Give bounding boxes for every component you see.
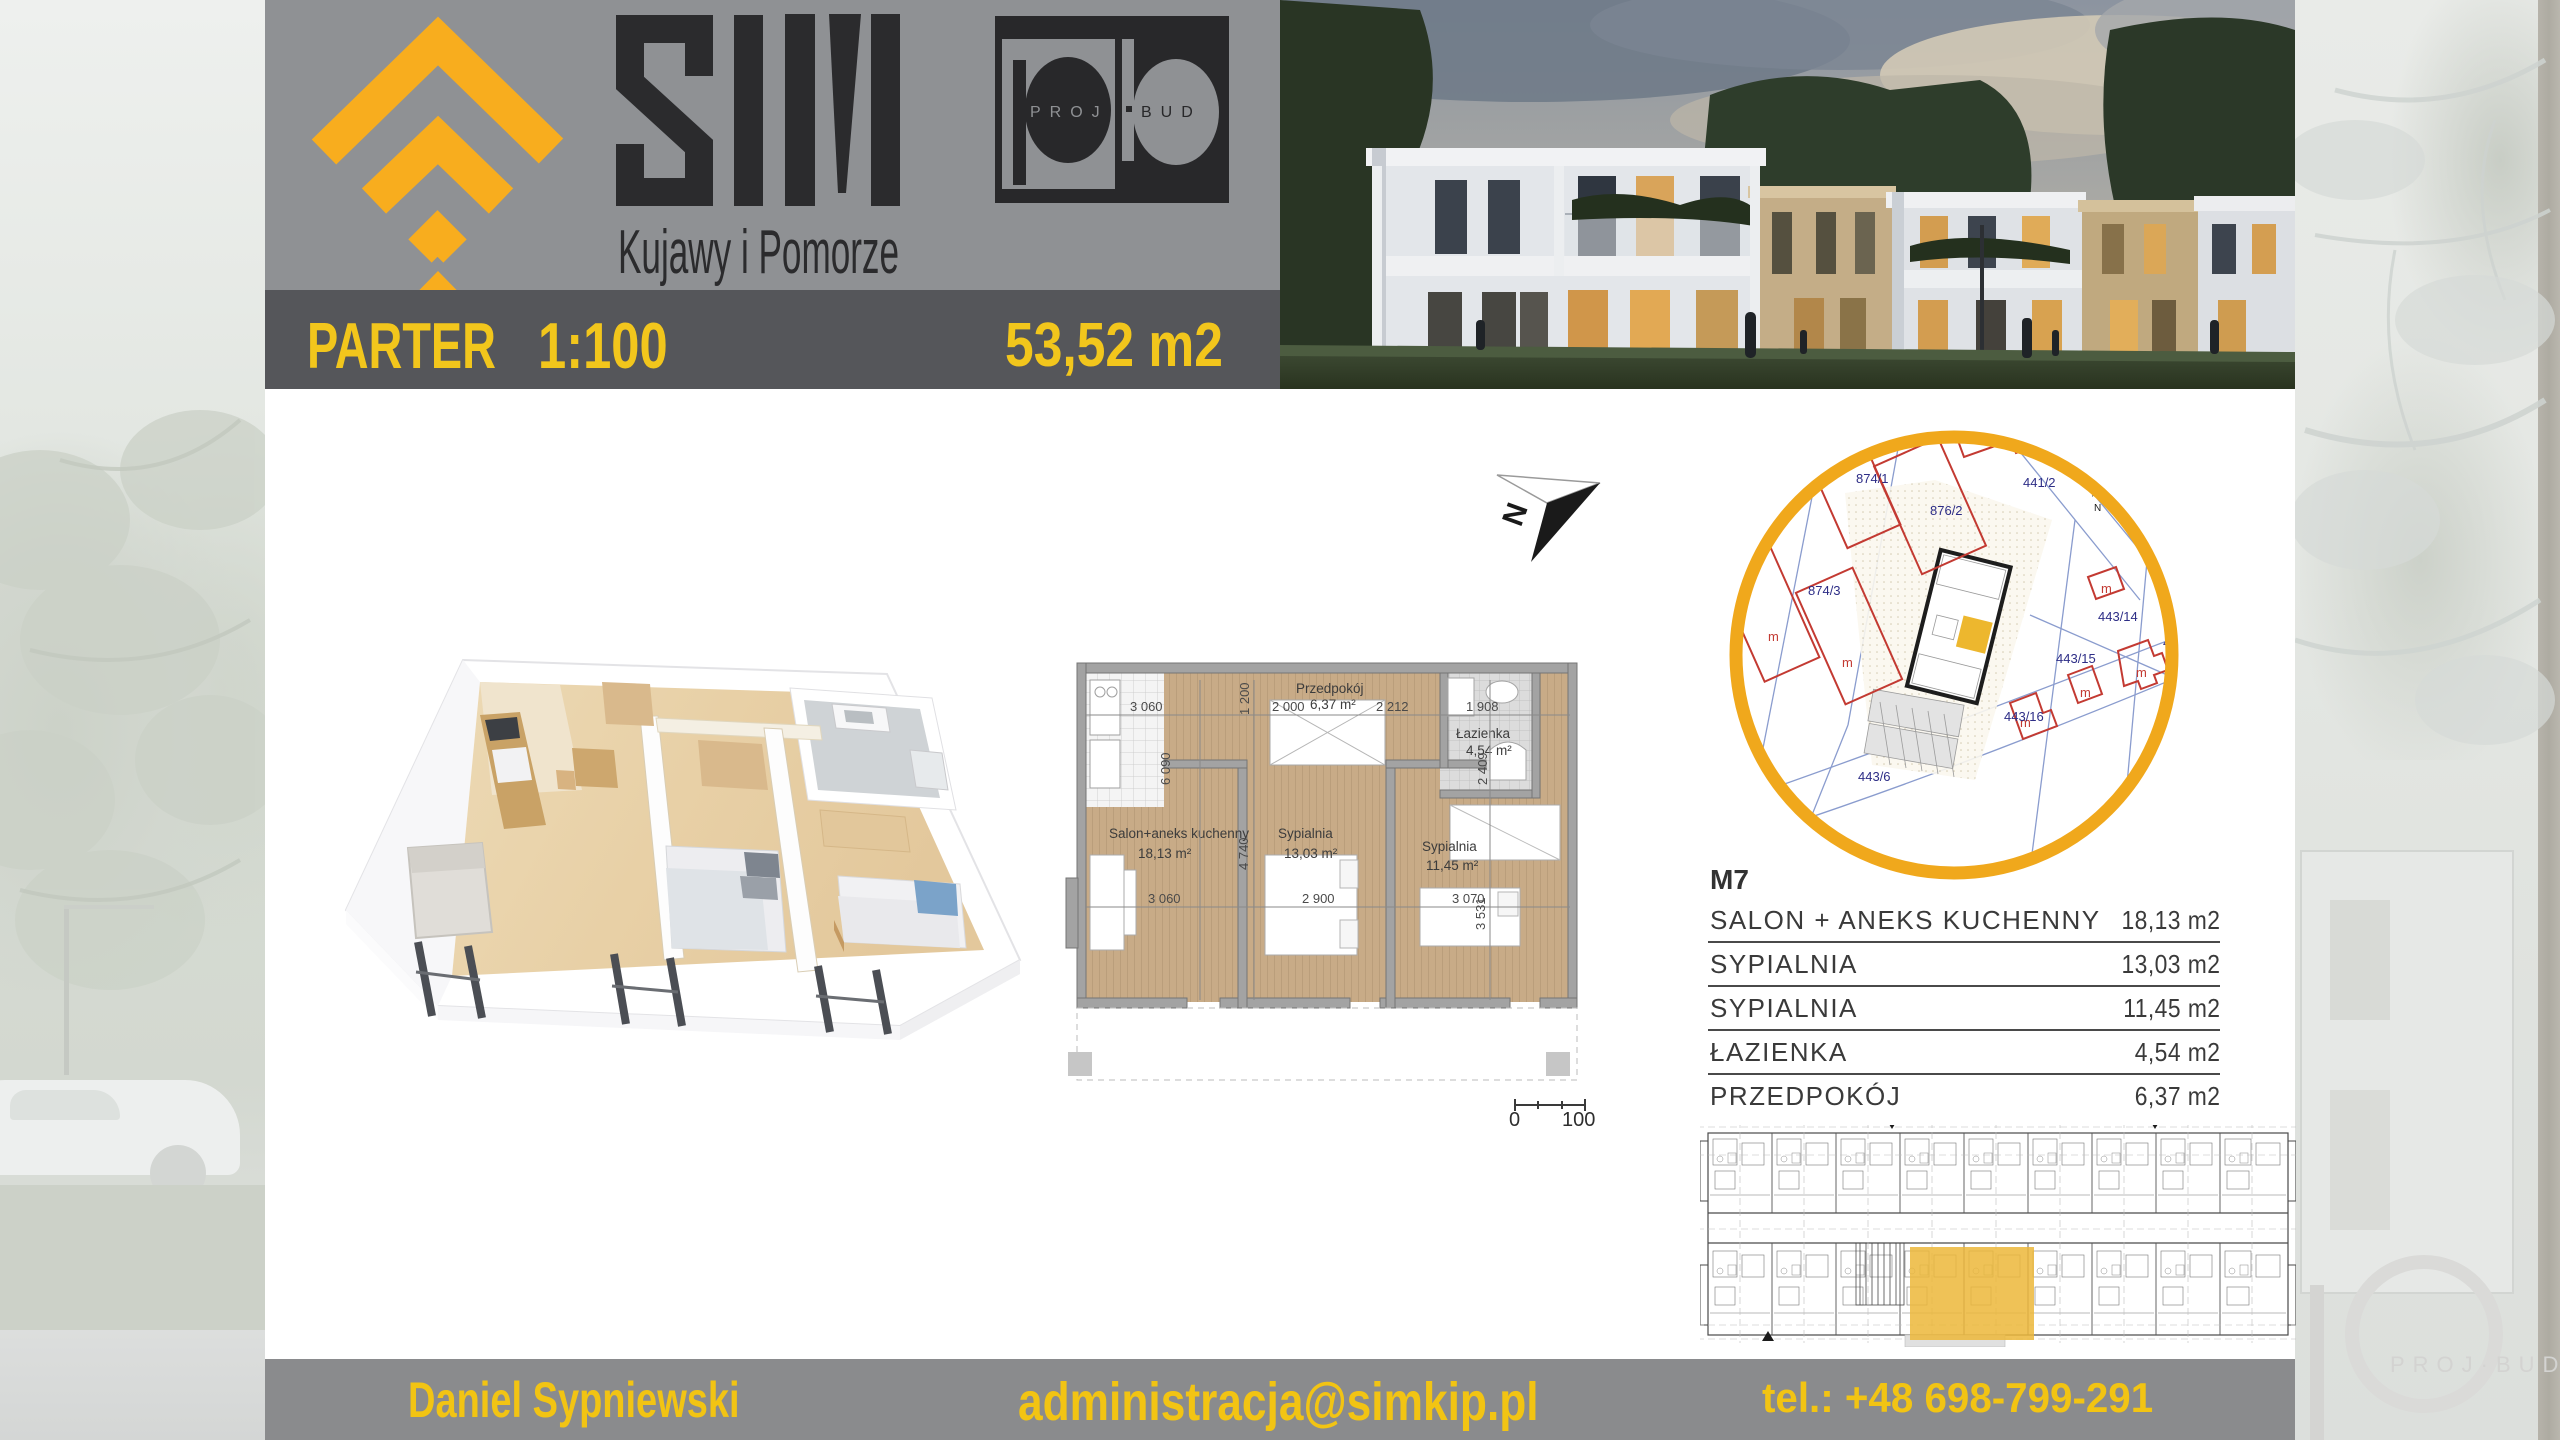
svg-text:2 900: 2 900 [1302,891,1335,906]
svg-text:Przedpokój: Przedpokój [1296,681,1364,696]
svg-text:11,45 m²: 11,45 m² [1426,858,1479,873]
svg-text:18,13 m²: 18,13 m² [1138,846,1192,861]
svg-text:m: m [2136,665,2147,680]
svg-text:Łazienka: Łazienka [1456,726,1511,741]
svg-text:N: N [1496,499,1534,531]
svg-text:PROJ: PROJ [1030,104,1109,121]
svg-text:4 740: 4 740 [1236,837,1251,870]
svg-text:2 212: 2 212 [1376,699,1409,714]
svg-text:6 090: 6 090 [1158,752,1173,785]
svg-text:443/14: 443/14 [2098,609,2138,624]
svg-text:874/3: 874/3 [1808,583,1841,598]
svg-text:Kujawy i Pomorze: Kujawy i Pomorze [618,218,899,287]
svg-text:3 060: 3 060 [1130,699,1163,714]
svg-text:443/16: 443/16 [2004,709,2044,724]
svg-text:2 409: 2 409 [1475,752,1490,785]
svg-text:100: 100 [1562,1109,1595,1131]
svg-text:443/6: 443/6 [1858,769,1891,784]
svg-text:1 200: 1 200 [1237,682,1252,715]
svg-text:m: m [1842,655,1853,670]
svg-text:13,03 m²: 13,03 m² [1284,846,1338,861]
svg-text:876/2: 876/2 [1930,503,1963,518]
svg-text:Sypialnia: Sypialnia [1278,826,1333,841]
svg-text:443/15: 443/15 [2056,651,2096,666]
svg-text:Sypialnia: Sypialnia [1422,839,1477,854]
svg-text:2 000: 2 000 [1272,699,1305,714]
svg-text:0: 0 [1509,1109,1520,1131]
svg-text:3 060: 3 060 [1148,891,1181,906]
svg-text:N: N [2094,503,2101,514]
svg-text:874/1: 874/1 [1856,471,1889,486]
svg-text:m: m [2101,581,2112,596]
svg-text:441/: 441/ [2082,439,2108,454]
svg-text:Salon+aneks kuchenny: Salon+aneks kuchenny [1109,826,1249,841]
svg-text:3 531: 3 531 [1473,897,1488,930]
svg-text:m: m [1768,629,1779,644]
svg-text:m: m [2080,685,2091,700]
svg-text:BUD: BUD [1141,104,1202,121]
svg-text:441/2: 441/2 [2023,475,2056,490]
svg-text:1 908: 1 908 [1466,699,1499,714]
svg-text:6,37 m²: 6,37 m² [1310,697,1356,712]
